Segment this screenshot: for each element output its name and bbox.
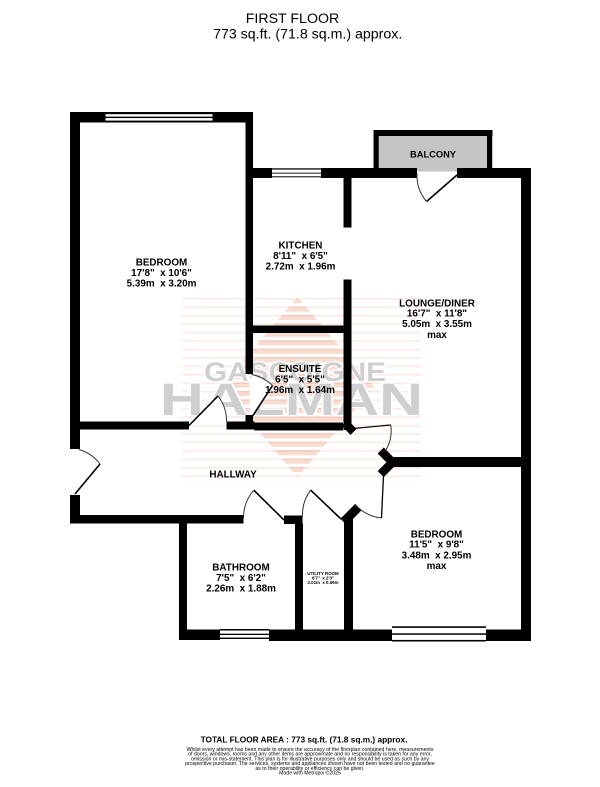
svg-text:2.72m x 1.96m: 2.72m x 1.96m: [266, 262, 336, 273]
svg-text:ENSUITE: ENSUITE: [279, 364, 322, 375]
svg-text:8'11" x 6'5": 8'11" x 6'5": [273, 251, 328, 262]
svg-text:7'5" x 6'2": 7'5" x 6'2": [216, 573, 266, 584]
svg-text:773 sq.ft. (71.8 sq.m.) approx: 773 sq.ft. (71.8 sq.m.) approx.: [213, 27, 402, 43]
svg-text:BATHROOM: BATHROOM: [212, 563, 269, 574]
svg-text:max: max: [427, 330, 447, 341]
svg-text:2.01m x 0.69m: 2.01m x 0.69m: [307, 580, 338, 585]
svg-text:1.96m x 1.64m: 1.96m x 1.64m: [265, 385, 335, 396]
svg-text:2.26m x 1.88m: 2.26m x 1.88m: [206, 584, 276, 595]
svg-text:max: max: [427, 561, 447, 572]
svg-text:FIRST FLOOR: FIRST FLOOR: [246, 11, 340, 27]
svg-text:KITCHEN: KITCHEN: [279, 241, 323, 252]
svg-text:16'7" x 11'8": 16'7" x 11'8": [407, 308, 468, 319]
svg-text:BALCONY: BALCONY: [410, 149, 457, 159]
svg-text:TOTAL FLOOR AREA : 773 sq.ft.: TOTAL FLOOR AREA : 773 sq.ft. (71.8 sq.m…: [201, 735, 408, 745]
svg-text:17'8" x 10'6": 17'8" x 10'6": [131, 268, 192, 279]
svg-text:6'5" x 5'5": 6'5" x 5'5": [275, 375, 325, 386]
svg-text:11'5" x 9'8": 11'5" x 9'8": [409, 540, 464, 551]
svg-text:3.48m x 2.95m: 3.48m x 2.95m: [402, 550, 472, 561]
svg-text:5.05m x 3.55m: 5.05m x 3.55m: [402, 319, 472, 330]
svg-text:HALLWAY: HALLWAY: [209, 470, 257, 481]
svg-text:BEDROOM: BEDROOM: [136, 257, 188, 268]
svg-text:Made with Metropix ©2025: Made with Metropix ©2025: [279, 770, 341, 777]
svg-text:5.39m x 3.20m: 5.39m x 3.20m: [127, 279, 197, 290]
